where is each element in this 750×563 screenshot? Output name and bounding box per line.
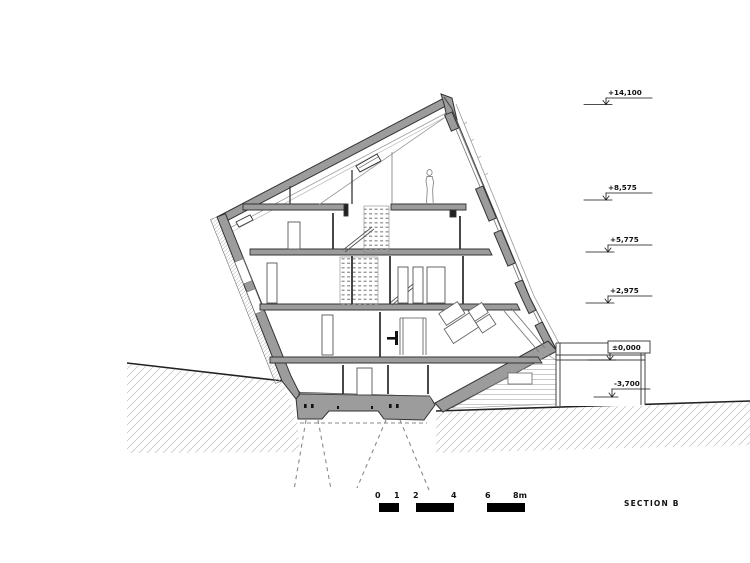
scale-label-2: 2 (413, 491, 419, 500)
level-label-floor2: +2,975 (610, 286, 639, 295)
foundation (288, 383, 435, 490)
level-label-floor3: +5,775 (610, 235, 639, 244)
scale-label-1: 1 (394, 491, 400, 500)
level-label-basement: -3,700 (614, 379, 640, 388)
slab-edge-beam-1 (344, 204, 348, 216)
scale-segment-2-4 (416, 503, 454, 512)
scale-label-0: 0 (375, 491, 381, 500)
scale-segment-6-8 (487, 503, 525, 512)
floor1-slab (270, 357, 542, 363)
attic-slab-left (243, 204, 346, 210)
slab-edge-beam-2 (450, 210, 456, 217)
level-label-roof: +14,100 (608, 88, 642, 97)
level-marker-floor3: +5,775 (586, 235, 652, 252)
stair-mesh-upper (364, 206, 389, 253)
level-label-attic: +8,575 (608, 183, 637, 192)
section-title: SECTION B (624, 499, 680, 508)
stair-mesh-lower (340, 257, 378, 305)
section-drawing-svg: +14,100 +8,575 +5,775 +2,975 (0, 0, 750, 563)
architectural-section-drawing: +14,100 +8,575 +5,775 +2,975 (0, 0, 750, 563)
level-marker-roof: +14,100 (584, 88, 652, 105)
scale-label-4: 4 (451, 491, 457, 500)
level-marker-attic: +8,575 (584, 183, 652, 200)
scale-segment-0-1 (379, 503, 399, 512)
level-label-ground: ±0,000 (612, 343, 641, 352)
rear-facade-window (508, 373, 532, 384)
scale-label-8m: 8m (513, 491, 527, 500)
pile-lines (294, 420, 429, 490)
scale-bar: 0 1 2 4 6 8m (375, 491, 527, 512)
level-marker-floor2: +2,975 (586, 286, 652, 303)
attic-slab-right (391, 204, 466, 210)
scale-label-6: 6 (485, 491, 491, 500)
